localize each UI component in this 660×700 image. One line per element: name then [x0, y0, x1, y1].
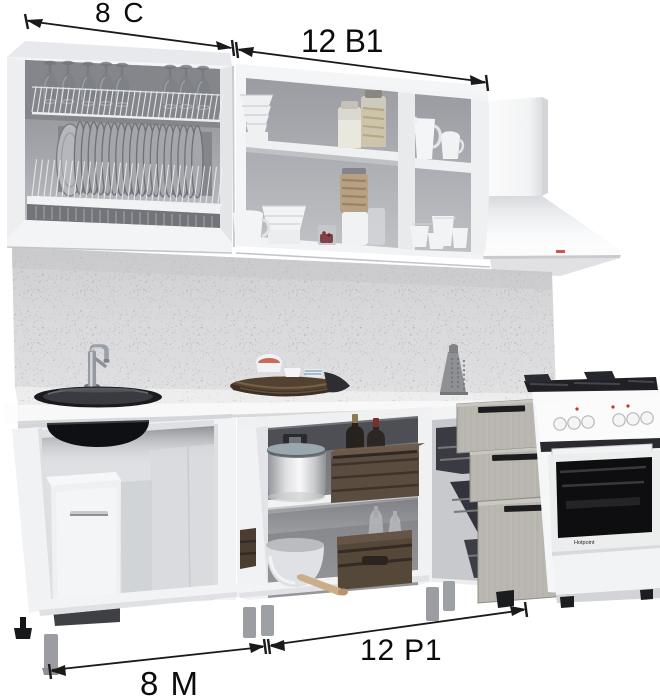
svg-text:12 P1: 12 P1	[360, 634, 442, 667]
svg-text:8 M: 8 M	[140, 665, 200, 700]
svg-text:12 B1: 12 B1	[301, 23, 383, 59]
svg-text:8 C: 8 C	[95, 0, 146, 28]
svg-text:Hotpoint: Hotpoint	[574, 540, 595, 546]
